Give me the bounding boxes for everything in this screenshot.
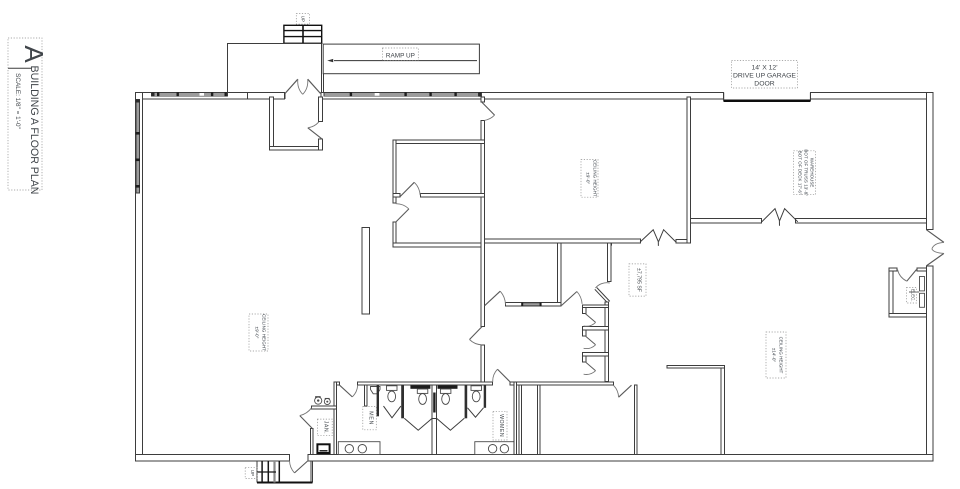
svg-text:CEILING HEIGHT: CEILING HEIGHT xyxy=(262,314,267,351)
svg-text:UP: UP xyxy=(250,470,255,476)
svg-text:CEILING HEIGHT: CEILING HEIGHT xyxy=(779,337,784,374)
svg-text:MEN: MEN xyxy=(368,411,374,425)
svg-text:BOT OF TRUSS 13'-8": BOT OF TRUSS 13'-8" xyxy=(804,149,809,196)
svg-text:JAN.: JAN. xyxy=(323,421,329,434)
svg-text:RAMP UP: RAMP UP xyxy=(386,52,415,59)
svg-text:WOMEN: WOMEN xyxy=(498,414,504,437)
svg-text:CEILING HEIGHT: CEILING HEIGHT xyxy=(593,160,598,197)
svg-text:DRIVE UP GARAGE: DRIVE UP GARAGE xyxy=(733,73,796,80)
svg-text:WAREHOUSE: WAREHOUSE xyxy=(810,158,815,188)
svg-text:±14'-0": ±14'-0" xyxy=(772,348,777,363)
svg-text:±7,795 SF: ±7,795 SF xyxy=(636,268,642,292)
svg-text:ELEC.: ELEC. xyxy=(911,289,916,302)
svg-text:SCALE: 1/8" = 1'-0": SCALE: 1/8" = 1'-0" xyxy=(14,73,21,129)
svg-text:UP: UP xyxy=(301,16,306,22)
svg-text:14' X 12': 14' X 12' xyxy=(751,65,777,72)
svg-text:BOT OF DECK 17'-6": BOT OF DECK 17'-6" xyxy=(798,151,803,195)
svg-text:A: A xyxy=(19,45,49,63)
svg-text:±9'-0": ±9'-0" xyxy=(255,327,260,339)
svg-text:BUILDING A FLOOR PLAN: BUILDING A FLOOR PLAN xyxy=(28,66,40,195)
svg-text:±9'-0": ±9'-0" xyxy=(586,172,591,184)
svg-text:DOOR: DOOR xyxy=(754,81,774,88)
